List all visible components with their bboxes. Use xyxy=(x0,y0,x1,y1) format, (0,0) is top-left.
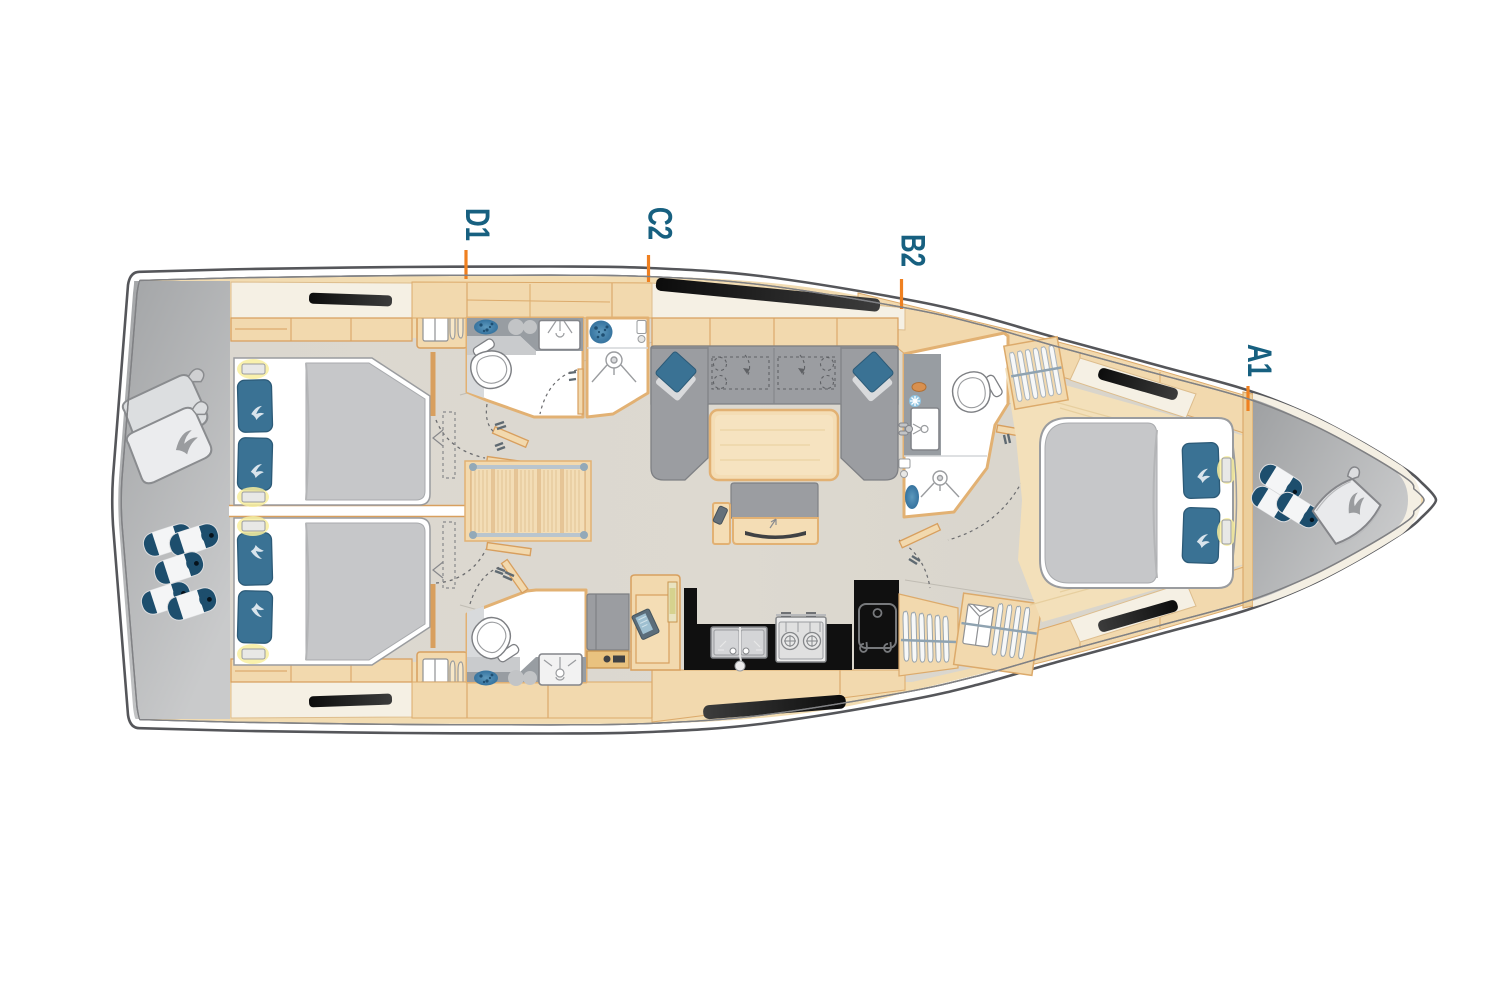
svg-text:B2: B2 xyxy=(894,234,931,267)
svg-text:C2: C2 xyxy=(641,207,678,240)
svg-text:A1: A1 xyxy=(1240,344,1277,377)
svg-text:D1: D1 xyxy=(458,208,495,241)
